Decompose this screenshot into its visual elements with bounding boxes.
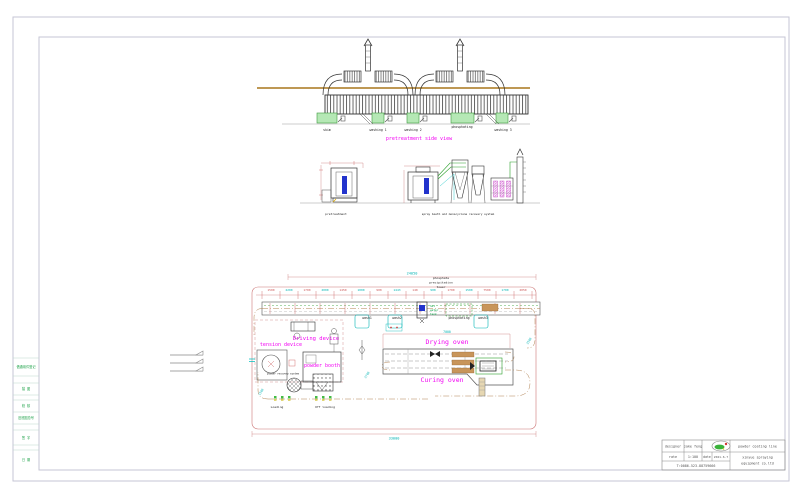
strip-label: 描 图 bbox=[22, 386, 30, 391]
exhaust-stack bbox=[415, 39, 505, 95]
strip-label: 签 字 bbox=[22, 435, 30, 440]
exhaust-stack bbox=[323, 39, 413, 95]
elevation-views: pretreatment spray booth and monocyclone… bbox=[300, 149, 540, 216]
company-name: equipment co.ltd bbox=[741, 462, 774, 466]
offloading-label: Off loading bbox=[315, 405, 335, 409]
company-logo-icon bbox=[712, 441, 730, 451]
hot-tank-label: tank bbox=[430, 312, 437, 316]
curing-oven-label: Curing oven bbox=[420, 376, 463, 384]
cyclone bbox=[451, 160, 469, 203]
plan-label-phosphating: phosphating bbox=[448, 316, 469, 320]
tank-washing3 bbox=[496, 113, 508, 123]
drawing-sheet: 借通用件登记 描 图 校 核 旧底图总号 签 字 日 期 skim washin… bbox=[0, 0, 800, 493]
dim-value: 140 bbox=[412, 288, 418, 292]
strip-label: 借通用件登记 bbox=[16, 364, 36, 369]
chimney bbox=[510, 149, 526, 203]
side-view-title: pretreatment side view bbox=[386, 136, 453, 142]
secondary-cyclone bbox=[471, 166, 485, 203]
dim-value: 1450 bbox=[339, 288, 346, 292]
dim-value: 1500 bbox=[267, 288, 274, 292]
loading-path bbox=[258, 372, 430, 401]
designer-label: designer bbox=[665, 445, 681, 449]
rate-label: rate bbox=[669, 455, 677, 459]
powder-recovery-label: powder recovery system bbox=[267, 373, 299, 376]
tank-label: phosphating bbox=[451, 125, 472, 129]
dim-value: 1000 bbox=[357, 288, 364, 292]
strip-label: 校 核 bbox=[22, 403, 31, 408]
workpiece bbox=[342, 176, 347, 194]
designer-value: jake feng bbox=[684, 445, 702, 449]
tension-device-label: tension device bbox=[260, 342, 302, 348]
pretreatment-side-view: skim washing 1 washing 2 phosphating was… bbox=[257, 39, 530, 142]
dim-value: 900 bbox=[430, 288, 436, 292]
tank-label: skim bbox=[323, 128, 331, 132]
tank-skim bbox=[317, 113, 337, 123]
tank-phosphating bbox=[451, 113, 474, 123]
powder-booth-label: powder booth bbox=[304, 363, 340, 369]
company-name: xinyue spraying bbox=[742, 456, 773, 460]
conveyor-tunnel bbox=[325, 95, 528, 114]
plan-label-wash2: wash2 bbox=[392, 316, 402, 320]
dim-value: 1443 bbox=[393, 288, 400, 292]
product-name: powder coating line bbox=[738, 445, 777, 449]
diag-dim: 2700 bbox=[363, 371, 370, 379]
cad-canvas: 借通用件登记 描 图 校 核 旧底图总号 签 字 日 期 skim washin… bbox=[0, 0, 800, 493]
pretreatment-section bbox=[319, 161, 363, 202]
rate-value: 1:100 bbox=[688, 455, 698, 459]
pretreatment-tanks bbox=[317, 113, 516, 124]
ladder-item bbox=[479, 378, 485, 396]
plan-label-wash3: wash3 bbox=[478, 316, 488, 320]
loading-label: Loading bbox=[271, 405, 284, 409]
tank-label: washing 2 bbox=[404, 128, 421, 132]
workpiece bbox=[424, 178, 429, 194]
dimension-row: 1500 2200 1700 2000 1450 1000 900 1443 1… bbox=[256, 288, 536, 299]
drive-motor bbox=[291, 322, 315, 331]
phosphating-tunnel bbox=[482, 304, 498, 311]
tank-label: washing 1 bbox=[369, 128, 386, 132]
strip-label: 日 期 bbox=[22, 457, 30, 462]
plan-view: 24050 33000 1500 2200 1700 2000 1450 100… bbox=[249, 272, 540, 441]
plan-label-wash1: wash1 bbox=[362, 316, 372, 320]
tower-label: precipitation bbox=[429, 281, 453, 285]
oven-dim: 7000 bbox=[443, 330, 451, 334]
revision-strip: 借通用件登记 描 图 校 核 旧底图总号 签 字 日 期 bbox=[16, 364, 36, 462]
drying-oven-label: Drying oven bbox=[425, 338, 468, 346]
recovery-fan bbox=[287, 378, 301, 392]
dim-total-top: 24050 bbox=[407, 272, 418, 276]
date-value: 2021.6.7 bbox=[714, 455, 729, 459]
dim-total-bottom: 33000 bbox=[389, 437, 400, 441]
title-block: designer jake feng rate 1:100 date 2021.… bbox=[662, 440, 785, 470]
elevation-label: spray booth and monocyclone recovery sys… bbox=[422, 212, 495, 216]
recovery-filter bbox=[313, 374, 333, 391]
dim-value: 2050 bbox=[519, 288, 526, 292]
diag-dim: 3500 bbox=[525, 337, 532, 345]
burner bbox=[452, 352, 474, 357]
tank-washing1 bbox=[372, 113, 384, 123]
dim-value: 2000 bbox=[321, 288, 328, 292]
elevation-label: pretreatment bbox=[325, 212, 347, 216]
dim-value: 7500 bbox=[483, 288, 490, 292]
filter-unit bbox=[491, 178, 513, 200]
tank-label: washing 3 bbox=[494, 128, 511, 132]
phone-value: T:0086-523-88759666 bbox=[677, 464, 716, 468]
tower-label: tower bbox=[436, 285, 445, 289]
dim-value: 1700 bbox=[501, 288, 508, 292]
dim-value: 900 bbox=[376, 288, 382, 292]
gun-stand bbox=[359, 340, 365, 360]
dim-value: 1700 bbox=[447, 288, 454, 292]
section-arrows bbox=[170, 351, 203, 371]
date-label: date bbox=[703, 455, 711, 459]
spray-booth-section bbox=[404, 149, 526, 203]
diag-dim: 1500 bbox=[257, 388, 264, 396]
dim-value: 1700 bbox=[303, 288, 310, 292]
tank-washing2 bbox=[407, 113, 419, 123]
dim-value: 2200 bbox=[285, 288, 292, 292]
strip-label: 旧底图总号 bbox=[18, 415, 34, 420]
oven-fan bbox=[430, 351, 440, 357]
dim-value: 1500 bbox=[465, 288, 472, 292]
tower-label: phosphate bbox=[433, 276, 449, 280]
sheet-frame: 借通用件登记 描 图 校 核 旧底图总号 签 字 日 期 bbox=[13, 17, 789, 481]
